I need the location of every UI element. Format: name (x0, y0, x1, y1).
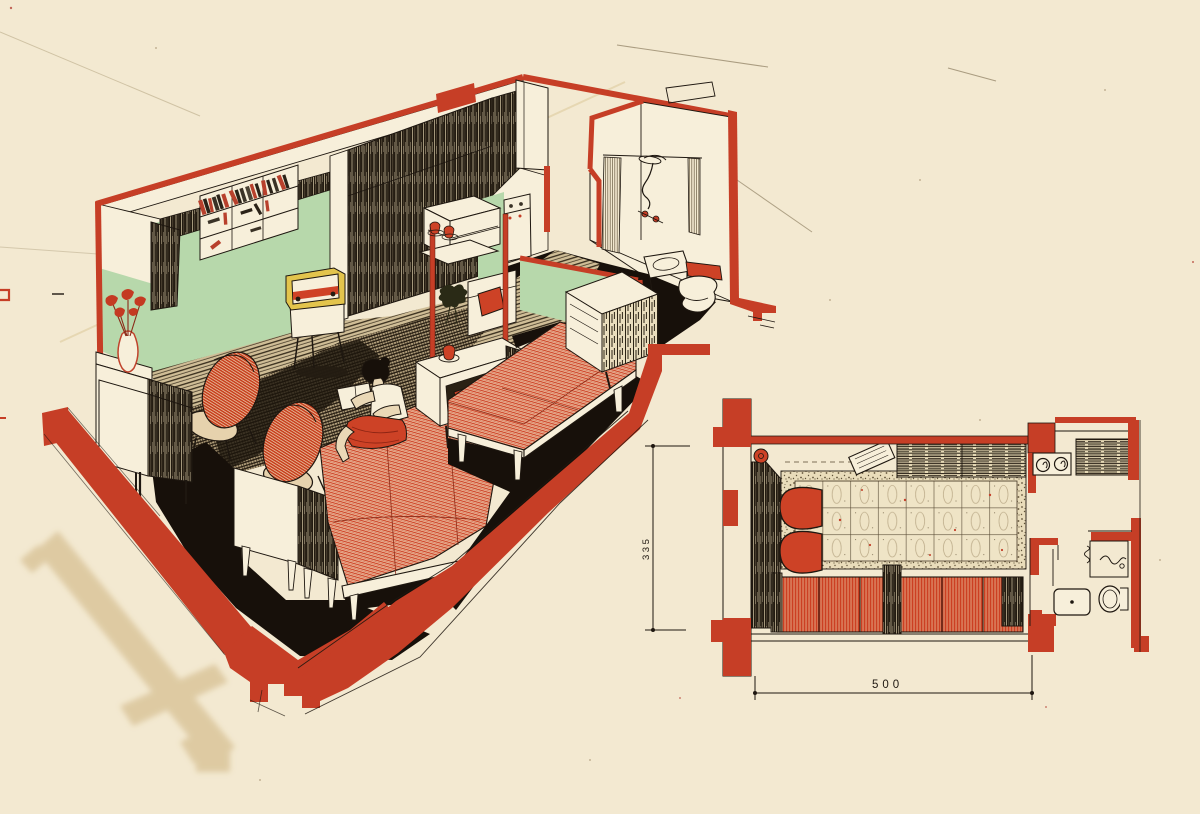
svg-text:500: 500 (872, 679, 903, 691)
svg-text:335: 335 (641, 537, 652, 560)
